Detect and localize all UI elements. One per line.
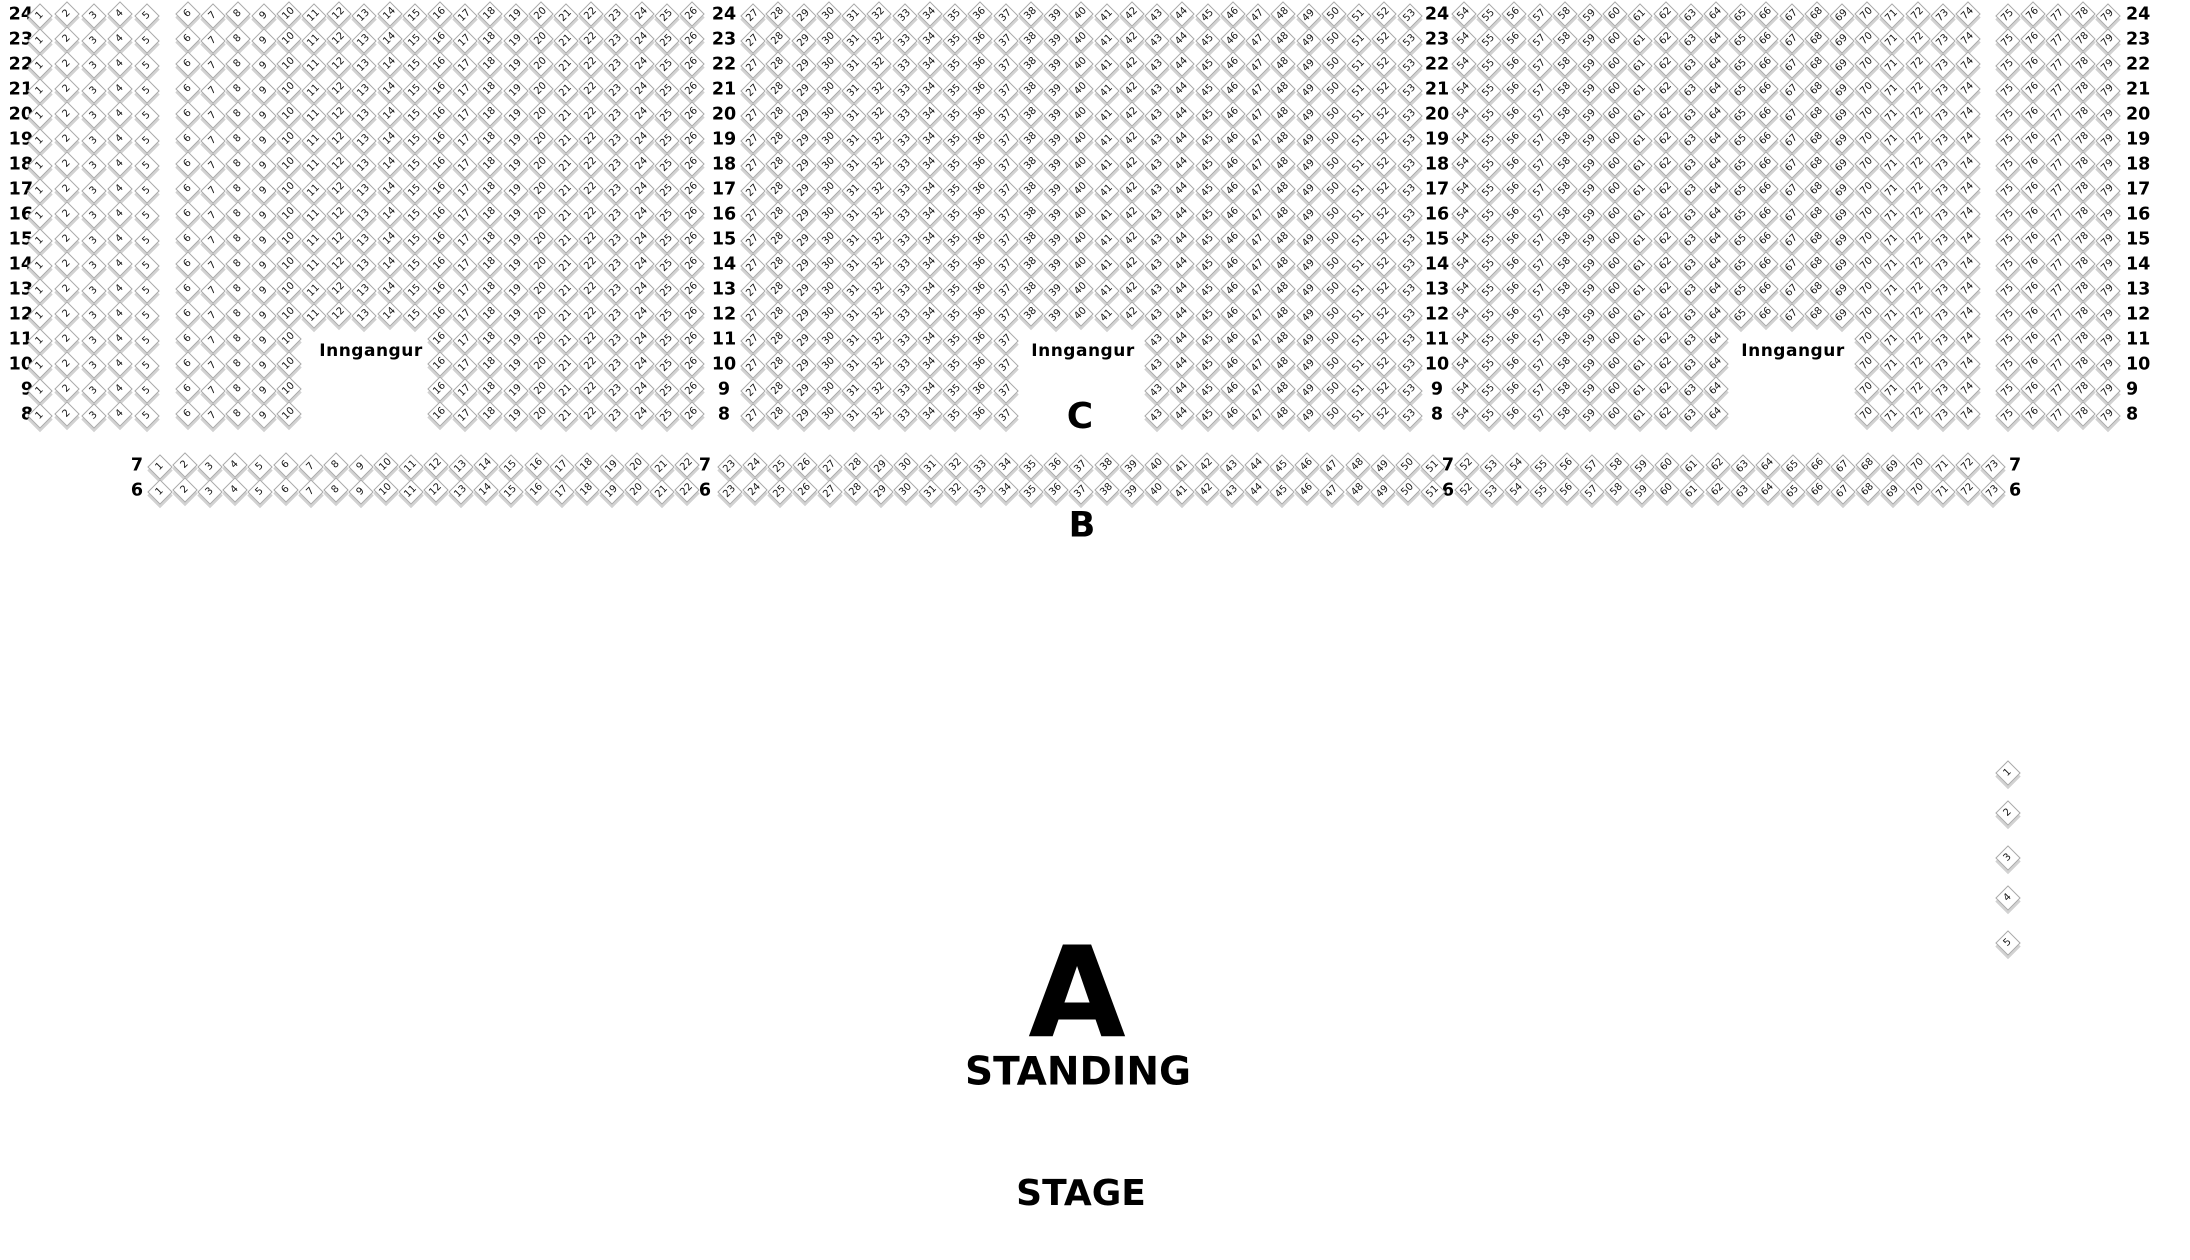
seat[interactable]: 71 <box>1880 154 1905 179</box>
seat[interactable]: 7 <box>200 279 225 304</box>
seat[interactable]: 7 <box>200 179 225 204</box>
seat[interactable]: 60 <box>1602 401 1627 426</box>
seat[interactable]: 60 <box>1602 26 1627 51</box>
seat[interactable]: 52 <box>1372 101 1397 126</box>
seat[interactable]: 40 <box>1069 226 1094 251</box>
seat[interactable]: 44 <box>1170 326 1195 351</box>
seat[interactable]: 78 <box>2070 151 2095 176</box>
seat[interactable]: 57 <box>1527 279 1552 304</box>
seat[interactable]: 52 <box>1372 176 1397 201</box>
seat[interactable]: 49 <box>1296 104 1321 129</box>
seat[interactable]: 21 <box>553 54 578 79</box>
seat[interactable]: 12 <box>326 151 351 176</box>
seat[interactable]: 17 <box>452 204 477 229</box>
seat[interactable]: 71 <box>1880 254 1905 279</box>
seat[interactable]: 51 <box>1346 279 1371 304</box>
seat[interactable]: 72 <box>1905 1 1930 26</box>
seat[interactable]: 27 <box>740 54 765 79</box>
seat[interactable]: 16 <box>427 401 452 426</box>
seat[interactable]: 25 <box>654 229 679 254</box>
seat[interactable]: 39 <box>1043 204 1068 229</box>
seat[interactable]: 71 <box>1880 404 1905 429</box>
seat[interactable]: 2 <box>54 51 79 76</box>
seat[interactable]: 5 <box>134 329 159 354</box>
seat[interactable]: 48 <box>1271 101 1296 126</box>
seat[interactable]: 43 <box>1144 404 1169 429</box>
seat[interactable]: 32 <box>943 452 968 477</box>
seat[interactable]: 24 <box>629 176 654 201</box>
seat[interactable]: 73 <box>1930 179 1955 204</box>
seat[interactable]: 12 <box>326 26 351 51</box>
seat[interactable]: 40 <box>1069 151 1094 176</box>
seat[interactable]: 41 <box>1094 104 1119 129</box>
seat[interactable]: 70 <box>1854 376 1879 401</box>
seat[interactable]: 68 <box>1804 1 1829 26</box>
seat[interactable]: 37 <box>1069 455 1094 480</box>
seat[interactable]: 23 <box>604 4 629 29</box>
seat[interactable]: 50 <box>1321 76 1346 101</box>
seat[interactable]: 24 <box>629 1 654 26</box>
seat[interactable]: 15 <box>402 254 427 279</box>
seat[interactable]: 43 <box>1144 379 1169 404</box>
seat[interactable]: 74 <box>1955 326 1980 351</box>
seat[interactable]: 74 <box>1955 76 1980 101</box>
seat[interactable]: 29 <box>791 54 816 79</box>
seat[interactable]: 43 <box>1144 79 1169 104</box>
seat[interactable]: 4 <box>223 477 248 502</box>
seat[interactable]: 36 <box>968 76 993 101</box>
seat[interactable]: 8 <box>226 326 251 351</box>
seat[interactable]: 20 <box>528 201 553 226</box>
seat[interactable]: 27 <box>740 279 765 304</box>
seat[interactable]: 57 <box>1527 404 1552 429</box>
seat[interactable]: 51 <box>1346 379 1371 404</box>
seat[interactable]: 30 <box>816 151 841 176</box>
seat[interactable]: 77 <box>2045 354 2070 379</box>
seat[interactable]: 76 <box>2020 301 2045 326</box>
seat[interactable]: 61 <box>1628 379 1653 404</box>
seat[interactable]: 8 <box>323 452 348 477</box>
seat[interactable]: 20 <box>528 376 553 401</box>
seat[interactable]: 58 <box>1552 351 1577 376</box>
seat[interactable]: 43 <box>1144 29 1169 54</box>
seat[interactable]: 63 <box>1730 455 1755 480</box>
seat[interactable]: 53 <box>1397 279 1422 304</box>
seat[interactable]: 33 <box>968 480 993 505</box>
seat[interactable]: 23 <box>604 154 629 179</box>
seat[interactable]: 79 <box>2095 129 2120 154</box>
seat[interactable]: 13 <box>352 129 377 154</box>
seat[interactable]: 15 <box>402 104 427 129</box>
seat[interactable]: 29 <box>791 329 816 354</box>
seat[interactable]: 73 <box>1930 154 1955 179</box>
seat[interactable]: 62 <box>1653 176 1678 201</box>
seat[interactable]: 8 <box>226 251 251 276</box>
seat[interactable]: 49 <box>1296 254 1321 279</box>
seat[interactable]: 26 <box>679 101 704 126</box>
seat[interactable]: 3 <box>1995 846 2020 871</box>
seat[interactable]: 17 <box>452 79 477 104</box>
seat[interactable]: 50 <box>1321 176 1346 201</box>
seat[interactable]: 10 <box>276 151 301 176</box>
seat[interactable]: 56 <box>1502 1 1527 26</box>
seat[interactable]: 33 <box>892 404 917 429</box>
seat[interactable]: 57 <box>1527 329 1552 354</box>
seat[interactable]: 33 <box>892 279 917 304</box>
seat[interactable]: 75 <box>1995 329 2020 354</box>
seat[interactable]: 34 <box>993 452 1018 477</box>
seat[interactable]: 3 <box>197 455 222 480</box>
seat[interactable]: 19 <box>503 4 528 29</box>
seat[interactable]: 14 <box>377 126 402 151</box>
seat[interactable]: 4 <box>108 226 133 251</box>
seat[interactable]: 3 <box>81 204 106 229</box>
seat[interactable]: 58 <box>1552 401 1577 426</box>
seat[interactable]: 30 <box>893 452 918 477</box>
seat[interactable]: 46 <box>1220 26 1245 51</box>
seat[interactable]: 65 <box>1728 79 1753 104</box>
seat[interactable]: 50 <box>1321 276 1346 301</box>
seat[interactable]: 21 <box>649 455 674 480</box>
seat[interactable]: 26 <box>679 351 704 376</box>
seat[interactable]: 37 <box>993 54 1018 79</box>
seat[interactable]: 6 <box>175 76 200 101</box>
seat[interactable]: 38 <box>1018 151 1043 176</box>
seat[interactable]: 68 <box>1804 126 1829 151</box>
seat[interactable]: 34 <box>917 51 942 76</box>
seat[interactable]: 27 <box>740 179 765 204</box>
seat[interactable]: 25 <box>654 4 679 29</box>
seat[interactable]: 13 <box>352 204 377 229</box>
seat[interactable]: 30 <box>816 126 841 151</box>
seat[interactable]: 13 <box>352 4 377 29</box>
seat[interactable]: 56 <box>1502 251 1527 276</box>
seat[interactable]: 34 <box>917 176 942 201</box>
seat[interactable]: 8 <box>226 151 251 176</box>
seat[interactable]: 72 <box>1905 126 1930 151</box>
seat[interactable]: 65 <box>1728 104 1753 129</box>
seat[interactable]: 79 <box>2095 104 2120 129</box>
seat[interactable]: 24 <box>629 76 654 101</box>
seat[interactable]: 24 <box>629 326 654 351</box>
seat[interactable]: 67 <box>1779 129 1804 154</box>
seat[interactable]: 64 <box>1703 26 1728 51</box>
seat[interactable]: 27 <box>740 229 765 254</box>
seat[interactable]: 54 <box>1451 326 1476 351</box>
seat[interactable]: 11 <box>301 254 326 279</box>
seat[interactable]: 31 <box>841 329 866 354</box>
seat[interactable]: 52 <box>1372 201 1397 226</box>
seat[interactable]: 71 <box>1880 204 1905 229</box>
seat[interactable]: 8 <box>226 1 251 26</box>
seat[interactable]: 77 <box>2045 204 2070 229</box>
seat[interactable]: 19 <box>503 154 528 179</box>
seat[interactable]: 23 <box>604 254 629 279</box>
seat[interactable]: 71 <box>1880 304 1905 329</box>
seat[interactable]: 25 <box>654 304 679 329</box>
seat[interactable]: 54 <box>1451 251 1476 276</box>
seat[interactable]: 71 <box>1880 354 1905 379</box>
seat[interactable]: 11 <box>301 129 326 154</box>
seat[interactable]: 21 <box>553 104 578 129</box>
seat[interactable]: 8 <box>226 301 251 326</box>
seat[interactable]: 49 <box>1370 480 1395 505</box>
seat[interactable]: 58 <box>1552 151 1577 176</box>
seat[interactable]: 64 <box>1703 51 1728 76</box>
seat[interactable]: 26 <box>793 452 818 477</box>
seat[interactable]: 30 <box>816 376 841 401</box>
seat[interactable]: 43 <box>1144 254 1169 279</box>
seat[interactable]: 39 <box>1043 104 1068 129</box>
seat[interactable]: 33 <box>892 179 917 204</box>
seat[interactable]: 59 <box>1577 129 1602 154</box>
seat[interactable]: 10 <box>276 401 301 426</box>
seat[interactable]: 36 <box>968 201 993 226</box>
seat[interactable]: 19 <box>503 304 528 329</box>
seat[interactable]: 26 <box>793 477 818 502</box>
seat[interactable]: 45 <box>1195 79 1220 104</box>
seat[interactable]: 6 <box>175 176 200 201</box>
seat[interactable]: 76 <box>2020 226 2045 251</box>
seat[interactable]: 16 <box>427 126 452 151</box>
seat[interactable]: 50 <box>1321 51 1346 76</box>
seat[interactable]: 47 <box>1245 129 1270 154</box>
seat[interactable]: 59 <box>1577 254 1602 279</box>
seat[interactable]: 12 <box>326 301 351 326</box>
seat[interactable]: 51 <box>1346 354 1371 379</box>
seat[interactable]: 41 <box>1094 204 1119 229</box>
seat[interactable]: 37 <box>993 204 1018 229</box>
seat[interactable]: 7 <box>298 480 323 505</box>
seat[interactable]: 8 <box>226 176 251 201</box>
seat[interactable]: 29 <box>791 404 816 429</box>
seat[interactable]: 20 <box>528 151 553 176</box>
seat[interactable]: 2 <box>1995 800 2020 825</box>
seat[interactable]: 57 <box>1527 179 1552 204</box>
seat[interactable]: 8 <box>226 101 251 126</box>
seat[interactable]: 56 <box>1502 351 1527 376</box>
seat[interactable]: 58 <box>1552 376 1577 401</box>
seat[interactable]: 76 <box>2020 51 2045 76</box>
seat[interactable]: 70 <box>1854 351 1879 376</box>
seat[interactable]: 57 <box>1527 79 1552 104</box>
seat[interactable]: 47 <box>1245 79 1270 104</box>
seat[interactable]: 22 <box>578 351 603 376</box>
seat[interactable]: 60 <box>1602 126 1627 151</box>
seat[interactable]: 71 <box>1880 379 1905 404</box>
seat[interactable]: 51 <box>1346 54 1371 79</box>
seat[interactable]: 52 <box>1372 126 1397 151</box>
seat[interactable]: 61 <box>1680 480 1705 505</box>
seat[interactable]: 37 <box>993 379 1018 404</box>
seat[interactable]: 10 <box>276 276 301 301</box>
seat[interactable]: 11 <box>301 79 326 104</box>
seat[interactable]: 59 <box>1577 354 1602 379</box>
seat[interactable]: 27 <box>740 404 765 429</box>
seat[interactable]: 17 <box>452 104 477 129</box>
seat[interactable]: 18 <box>574 452 599 477</box>
seat[interactable]: 77 <box>2045 54 2070 79</box>
seat[interactable]: 32 <box>867 176 892 201</box>
seat[interactable]: 56 <box>1502 151 1527 176</box>
seat[interactable]: 41 <box>1094 229 1119 254</box>
seat[interactable]: 65 <box>1728 54 1753 79</box>
seat[interactable]: 68 <box>1804 26 1829 51</box>
seat[interactable]: 60 <box>1602 226 1627 251</box>
seat[interactable]: 49 <box>1296 229 1321 254</box>
seat[interactable]: 57 <box>1527 29 1552 54</box>
seat[interactable]: 63 <box>1678 279 1703 304</box>
seat[interactable]: 3 <box>81 54 106 79</box>
seat[interactable]: 59 <box>1577 4 1602 29</box>
seat[interactable]: 69 <box>1829 4 1854 29</box>
seat[interactable]: 9 <box>251 4 276 29</box>
seat[interactable]: 6 <box>273 477 298 502</box>
seat[interactable]: 66 <box>1754 176 1779 201</box>
seat[interactable]: 7 <box>200 129 225 154</box>
seat[interactable]: 22 <box>578 276 603 301</box>
seat[interactable]: 42 <box>1119 1 1144 26</box>
seat[interactable]: 32 <box>867 401 892 426</box>
seat[interactable]: 4 <box>108 26 133 51</box>
seat[interactable]: 36 <box>968 126 993 151</box>
seat[interactable]: 22 <box>578 26 603 51</box>
seat[interactable]: 2 <box>172 477 197 502</box>
seat[interactable]: 40 <box>1069 1 1094 26</box>
seat[interactable]: 35 <box>942 254 967 279</box>
seat[interactable]: 27 <box>818 455 843 480</box>
seat[interactable]: 57 <box>1527 229 1552 254</box>
seat[interactable]: 72 <box>1905 351 1930 376</box>
seat[interactable]: 47 <box>1245 29 1270 54</box>
seat[interactable]: 6 <box>175 101 200 126</box>
seat[interactable]: 48 <box>1271 351 1296 376</box>
seat[interactable]: 60 <box>1602 151 1627 176</box>
seat[interactable]: 28 <box>766 326 791 351</box>
seat[interactable]: 61 <box>1628 29 1653 54</box>
seat[interactable]: 7 <box>200 329 225 354</box>
seat[interactable]: 58 <box>1605 477 1630 502</box>
seat[interactable]: 49 <box>1370 455 1395 480</box>
seat[interactable]: 60 <box>1655 477 1680 502</box>
seat[interactable]: 67 <box>1779 279 1804 304</box>
seat[interactable]: 46 <box>1220 401 1245 426</box>
seat[interactable]: 49 <box>1296 404 1321 429</box>
seat[interactable]: 18 <box>478 401 503 426</box>
seat[interactable]: 53 <box>1479 455 1504 480</box>
seat[interactable]: 34 <box>917 76 942 101</box>
seat[interactable]: 11 <box>301 204 326 229</box>
seat[interactable]: 20 <box>528 301 553 326</box>
seat[interactable]: 11 <box>301 54 326 79</box>
seat[interactable]: 18 <box>478 126 503 151</box>
seat[interactable]: 50 <box>1321 301 1346 326</box>
seat[interactable]: 62 <box>1653 126 1678 151</box>
seat[interactable]: 48 <box>1271 276 1296 301</box>
seat[interactable]: 10 <box>276 126 301 151</box>
seat[interactable]: 58 <box>1552 126 1577 151</box>
seat[interactable]: 31 <box>841 154 866 179</box>
seat[interactable]: 31 <box>841 4 866 29</box>
seat[interactable]: 35 <box>942 79 967 104</box>
seat[interactable]: 78 <box>2070 1 2095 26</box>
seat[interactable]: 7 <box>200 254 225 279</box>
seat[interactable]: 23 <box>604 29 629 54</box>
seat[interactable]: 72 <box>1955 452 1980 477</box>
seat[interactable]: 28 <box>766 76 791 101</box>
seat[interactable]: 78 <box>2070 351 2095 376</box>
seat[interactable]: 70 <box>1854 126 1879 151</box>
seat[interactable]: 3 <box>81 329 106 354</box>
seat[interactable]: 28 <box>766 101 791 126</box>
seat[interactable]: 50 <box>1321 351 1346 376</box>
seat[interactable]: 79 <box>2095 279 2120 304</box>
seat[interactable]: 63 <box>1678 154 1703 179</box>
seat[interactable]: 64 <box>1703 101 1728 126</box>
seat[interactable]: 5 <box>134 354 159 379</box>
seat[interactable]: 31 <box>918 480 943 505</box>
seat[interactable]: 51 <box>1346 154 1371 179</box>
seat[interactable]: 67 <box>1779 154 1804 179</box>
seat[interactable]: 29 <box>791 129 816 154</box>
seat[interactable]: 39 <box>1119 455 1144 480</box>
seat[interactable]: 2 <box>54 151 79 176</box>
seat[interactable]: 28 <box>843 452 868 477</box>
seat[interactable]: 48 <box>1271 126 1296 151</box>
seat[interactable]: 57 <box>1527 104 1552 129</box>
seat[interactable]: 39 <box>1043 179 1068 204</box>
seat[interactable]: 76 <box>2020 376 2045 401</box>
seat[interactable]: 66 <box>1754 251 1779 276</box>
seat[interactable]: 31 <box>841 79 866 104</box>
seat[interactable]: 53 <box>1397 129 1422 154</box>
seat[interactable]: 74 <box>1955 26 1980 51</box>
seat[interactable]: 19 <box>503 129 528 154</box>
seat[interactable]: 55 <box>1476 154 1501 179</box>
seat[interactable]: 43 <box>1144 129 1169 154</box>
seat[interactable]: 15 <box>402 29 427 54</box>
seat[interactable]: 36 <box>968 251 993 276</box>
seat[interactable]: 10 <box>276 176 301 201</box>
seat[interactable]: 73 <box>1930 304 1955 329</box>
seat[interactable]: 65 <box>1728 179 1753 204</box>
seat[interactable]: 11 <box>301 179 326 204</box>
seat[interactable]: 7 <box>200 304 225 329</box>
seat[interactable]: 31 <box>841 279 866 304</box>
seat[interactable]: 3 <box>81 79 106 104</box>
seat[interactable]: 62 <box>1653 151 1678 176</box>
seat[interactable]: 79 <box>2095 404 2120 429</box>
seat[interactable]: 73 <box>1930 4 1955 29</box>
seat[interactable]: 3 <box>81 304 106 329</box>
seat[interactable]: 44 <box>1170 201 1195 226</box>
seat[interactable]: 35 <box>942 29 967 54</box>
seat[interactable]: 20 <box>624 452 649 477</box>
seat[interactable]: 7 <box>200 79 225 104</box>
seat[interactable]: 46 <box>1220 176 1245 201</box>
seat[interactable]: 63 <box>1678 404 1703 429</box>
seat[interactable]: 51 <box>1346 129 1371 154</box>
seat[interactable]: 64 <box>1703 201 1728 226</box>
seat[interactable]: 20 <box>528 326 553 351</box>
seat[interactable]: 55 <box>1476 304 1501 329</box>
seat[interactable]: 4 <box>108 376 133 401</box>
seat[interactable]: 5 <box>134 4 159 29</box>
seat[interactable]: 38 <box>1094 477 1119 502</box>
seat[interactable]: 32 <box>867 126 892 151</box>
seat[interactable]: 43 <box>1144 104 1169 129</box>
seat[interactable]: 14 <box>377 76 402 101</box>
